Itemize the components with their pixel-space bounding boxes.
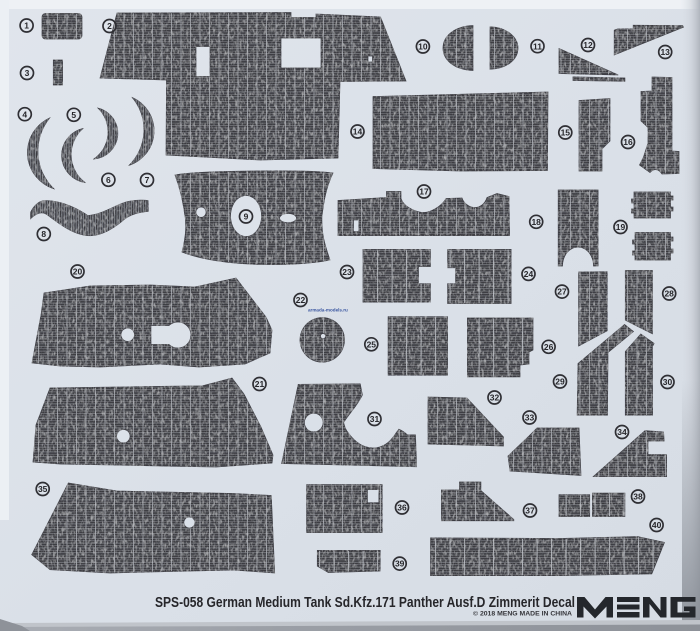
svg-text:33: 33 [525,413,535,423]
svg-text:36: 36 [397,503,407,513]
svg-text:7: 7 [145,175,150,185]
svg-text:SPS-058 German Medium Tank Sd.: SPS-058 German Medium Tank Sd.Kfz.171 Pa… [155,595,575,611]
svg-text:24: 24 [524,269,534,279]
svg-text:armada-models.ru: armada-models.ru [308,308,348,313]
svg-text:17: 17 [419,187,429,197]
svg-text:15: 15 [561,128,571,138]
svg-text:40: 40 [652,520,662,530]
svg-text:35: 35 [38,484,48,494]
svg-text:14: 14 [353,127,363,137]
svg-text:26: 26 [544,342,554,352]
svg-text:20: 20 [73,267,83,277]
svg-text:4: 4 [22,109,27,119]
svg-text:22: 22 [296,295,306,305]
svg-text:30: 30 [663,377,673,387]
svg-text:6: 6 [106,175,111,185]
svg-text:13: 13 [660,47,670,57]
svg-text:39: 39 [395,559,405,569]
svg-text:28: 28 [664,289,674,299]
svg-text:18: 18 [531,217,541,227]
svg-text:9: 9 [244,212,249,222]
svg-text:21: 21 [255,379,265,389]
svg-text:3: 3 [25,68,30,78]
svg-text:34: 34 [617,427,627,437]
svg-text:11: 11 [533,41,542,51]
svg-text:25: 25 [367,339,377,349]
svg-text:23: 23 [342,267,352,277]
svg-text:31: 31 [370,414,380,424]
svg-text:2: 2 [107,21,112,31]
svg-text:27: 27 [557,287,567,297]
svg-text:12: 12 [583,40,593,50]
svg-text:19: 19 [616,222,626,232]
svg-text:29: 29 [555,377,565,387]
svg-text:1: 1 [24,21,29,31]
svg-text:38: 38 [633,492,643,502]
svg-text:10: 10 [418,42,428,52]
svg-text:16: 16 [623,137,633,147]
svg-text:32: 32 [490,393,500,403]
svg-text:37: 37 [525,506,535,516]
svg-text:8: 8 [41,229,46,239]
svg-text:© 2018 MENG MADE IN CHINA: © 2018 MENG MADE IN CHINA [473,611,573,618]
svg-text:5: 5 [71,110,76,120]
